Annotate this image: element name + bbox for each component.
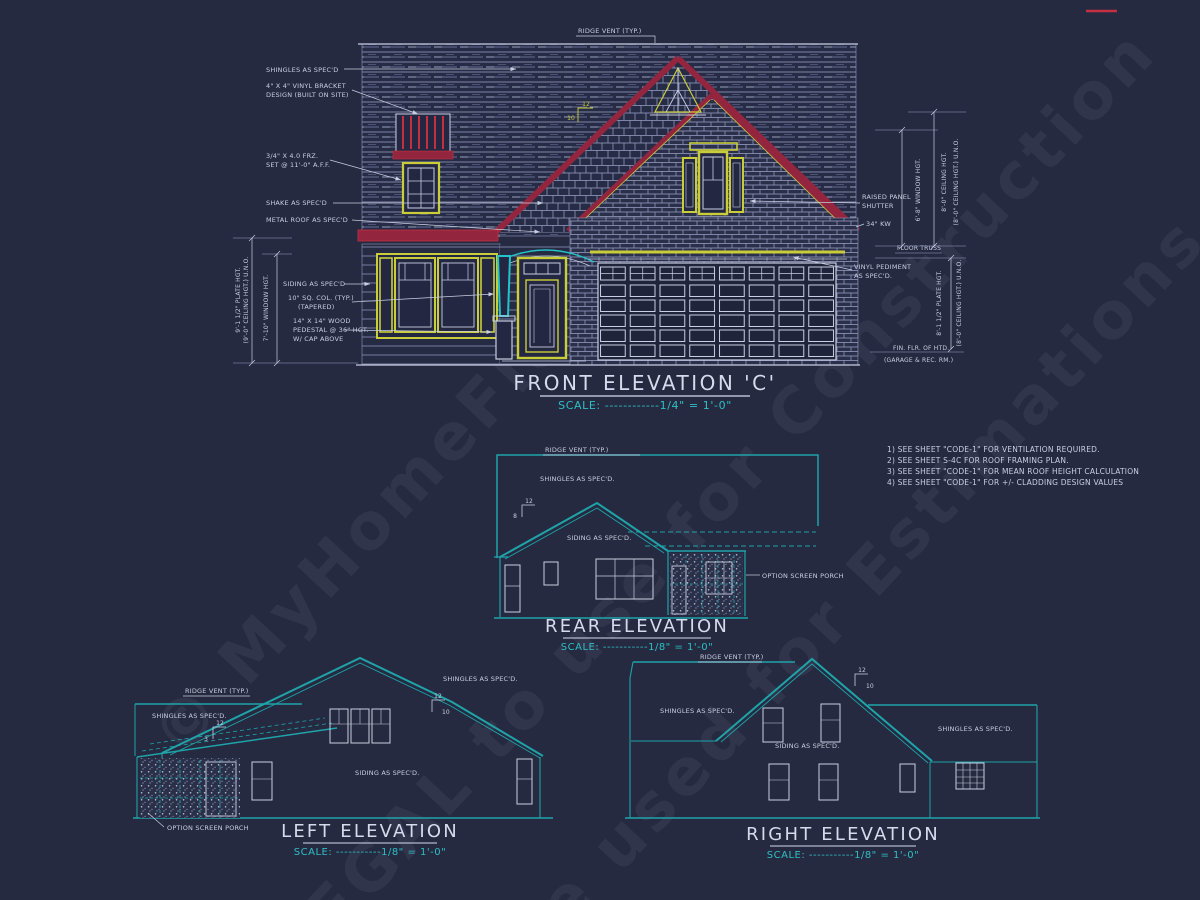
dim-ceiling-right-1: 8'-0" CEILING HGT. bbox=[941, 152, 948, 211]
right-label-siding: SIDING AS SPEC'D. bbox=[775, 742, 840, 750]
rear-label-shingles: SHINGLES AS SPEC'D. bbox=[540, 475, 615, 483]
left-label-ridge-vent: RIDGE VENT (TYP.) bbox=[185, 687, 249, 695]
label-siding: SIDING AS SPEC'D bbox=[283, 280, 345, 288]
label-ridge-vent: RIDGE VENT (TYP.) bbox=[578, 27, 642, 35]
left-pitch2-rise: 12 bbox=[434, 693, 442, 700]
label-knee-wall: 34" KW bbox=[866, 220, 891, 228]
right-title-block: RIGHT ELEVATION SCALE: -----------1/8" =… bbox=[746, 824, 940, 861]
label-pedestal-3: W/ CAP ABOVE bbox=[293, 335, 343, 343]
rear-title: REAR ELEVATION bbox=[545, 616, 729, 637]
label-pediment-2: AS SPEC'D. bbox=[854, 272, 892, 280]
left-label-screen-porch: OPTION SCREEN PORCH bbox=[167, 824, 249, 832]
front-title: FRONT ELEVATION 'C' bbox=[513, 371, 776, 395]
note-4: 4) SEE SHEET "CODE-1" FOR +/- CLADDING D… bbox=[887, 478, 1123, 487]
label-frieze-1: 3/4" X 4.0 FRZ. bbox=[266, 152, 318, 160]
label-fin-floor-1: FIN. FLR. OF HTD. bbox=[893, 345, 949, 352]
label-shutter-2: SHUTTER bbox=[862, 202, 894, 210]
rear-screen-porch bbox=[670, 553, 743, 615]
rear-pitch-marker: 12 8 bbox=[513, 498, 535, 520]
label-bracket-2: DESIGN (BUILT ON SITE) bbox=[266, 91, 349, 99]
rear-label-screen-porch: OPTION SCREEN PORCH bbox=[762, 572, 844, 580]
front-elevation: 12 10 RIDGE VENT (TYP.) SHINGLES AS SPEC… bbox=[233, 27, 966, 412]
front-door bbox=[518, 258, 566, 358]
left-label-shingles-left: SHINGLES AS SPEC'D. bbox=[152, 712, 227, 720]
note-2: 2) SEE SHEET S-4C FOR ROOF FRAMING PLAN. bbox=[887, 456, 1069, 465]
dim-ceiling-right-2: (8'-0" CEILING HGT.) U.N.O. bbox=[953, 139, 960, 226]
left-title-block: LEFT ELEVATION SCALE: -----------1/8" = … bbox=[281, 821, 459, 858]
rear-scale: SCALE: -----------1/8" = 1'-0" bbox=[561, 642, 713, 653]
label-pedestal-1: 14" X 14" WOOD bbox=[293, 317, 351, 325]
front-dormer-window bbox=[403, 163, 439, 213]
label-fin-floor-2: (GARAGE & REC. RM.) bbox=[884, 357, 953, 364]
rear-title-block: REAR ELEVATION SCALE: -----------1/8" = … bbox=[545, 616, 729, 653]
left-label-siding: SIDING AS SPEC'D. bbox=[355, 769, 420, 777]
label-metal-roof: METAL ROOF AS SPEC'D bbox=[266, 216, 348, 224]
rear-pitch-run: 8 bbox=[513, 513, 517, 520]
left-title: LEFT ELEVATION bbox=[281, 821, 459, 842]
label-shake: SHAKE AS SPEC'D bbox=[266, 199, 327, 207]
note-1: 1) SEE SHEET "CODE-1" FOR VENTILATION RE… bbox=[887, 445, 1100, 454]
left-pitch1-rise: 12 bbox=[216, 720, 224, 727]
blueprint-sheet: © MyHomeFloorPlans ILLEGAL to use for Co… bbox=[0, 0, 1200, 900]
label-frieze-2: SET @ 11'-0" A.F.F. bbox=[266, 161, 330, 169]
label-column-1: 10" SQ. COL. (TYP.) bbox=[288, 294, 354, 302]
label-column-2: (TAPERED) bbox=[298, 303, 334, 311]
dim-window-right: 6'-8" WINDOW HGT. bbox=[915, 159, 922, 222]
right-pitch-run: 10 bbox=[866, 683, 874, 690]
label-shingles: SHINGLES AS SPEC'D bbox=[266, 66, 338, 74]
front-bracket-panel bbox=[393, 114, 453, 159]
dim-plate-right-1: 8'-1 1/2" PLATE HGT. bbox=[936, 270, 943, 336]
wood-pedestal bbox=[496, 321, 512, 359]
left-screen-porch bbox=[140, 758, 240, 818]
front-title-block: FRONT ELEVATION 'C' SCALE: ------------1… bbox=[513, 371, 776, 412]
label-pediment-1: VINYL PEDIMENT bbox=[854, 263, 911, 271]
right-label-shingles-left: SHINGLES AS SPEC'D. bbox=[660, 707, 735, 715]
rear-label-ridge-vent: RIDGE VENT (TYP.) bbox=[545, 446, 609, 454]
garage-door bbox=[588, 252, 847, 360]
right-scale: SCALE: -----------1/8" = 1'-0" bbox=[767, 850, 919, 861]
pitch-run-label: 10 bbox=[567, 115, 575, 122]
pitch-rise-label: 12 bbox=[582, 101, 590, 108]
metal-roof-strip bbox=[358, 230, 498, 241]
label-shutter-1: RAISED PANEL bbox=[862, 193, 911, 201]
left-scale: SCALE: -----------1/8" = 1'-0" bbox=[294, 847, 446, 858]
left-label-shingles-right: SHINGLES AS SPEC'D. bbox=[443, 675, 518, 683]
label-bracket-1: 4" X 4" VINYL BRACKET bbox=[266, 82, 346, 90]
right-title: RIGHT ELEVATION bbox=[746, 824, 940, 845]
dim-plate-left-2: (9'-0" CEILING HGT.) U.N.O. bbox=[243, 257, 250, 344]
right-label-shingles-right: SHINGLES AS SPEC'D. bbox=[938, 725, 1013, 733]
dim-plate-right-2: (8'-0" CEILING HGT.) U.N.O. bbox=[956, 260, 963, 347]
note-3: 3) SEE SHEET "CODE-1" FOR MEAN ROOF HEIG… bbox=[887, 467, 1139, 476]
rear-pitch-rise: 12 bbox=[525, 498, 533, 505]
bay-window-group bbox=[377, 254, 497, 338]
right-pitch-rise: 12 bbox=[858, 667, 866, 674]
dim-window-left: 7'-10" WINDOW HGT. bbox=[263, 275, 270, 342]
right-windows bbox=[763, 704, 984, 800]
elevation-drawing-canvas: © MyHomeFloorPlans ILLEGAL to use for Co… bbox=[0, 0, 1200, 900]
right-pitch-marker: 12 10 bbox=[855, 667, 874, 690]
tapered-column bbox=[498, 256, 510, 316]
left-pitch2-run: 10 bbox=[442, 709, 450, 716]
front-scale: SCALE: ------------1/4" = 1'-0" bbox=[558, 399, 732, 412]
rear-label-siding: SIDING AS SPEC'D. bbox=[567, 534, 632, 542]
dim-plate-left-1: 9'-1 1/2" PLATE HGT. bbox=[235, 267, 242, 333]
right-label-ridge-vent: RIDGE VENT (TYP.) bbox=[700, 653, 764, 661]
left-pitch1-run: 3 bbox=[204, 736, 208, 743]
